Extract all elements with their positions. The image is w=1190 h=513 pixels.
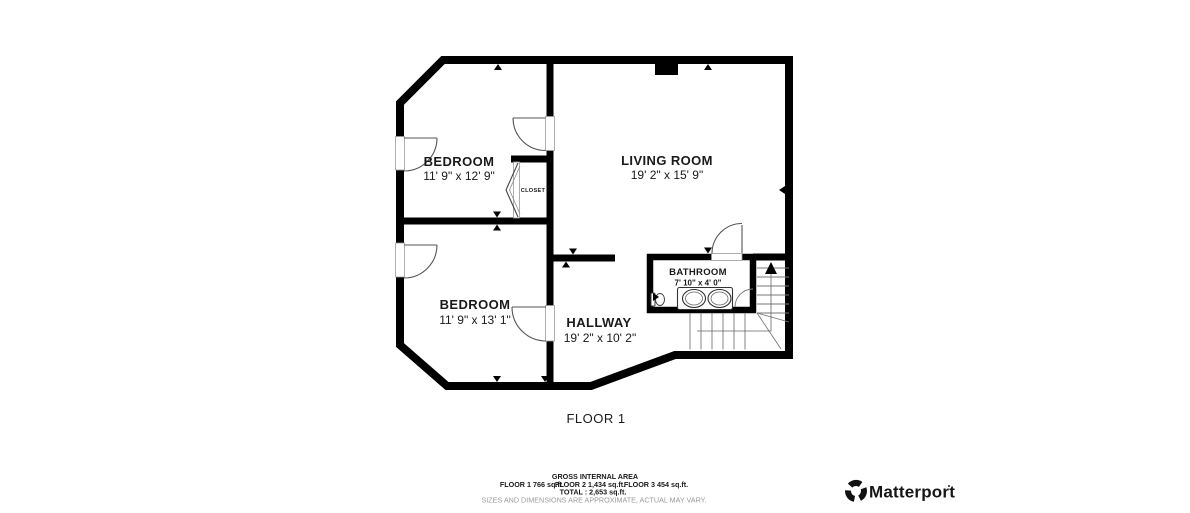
room-dims-bedroom2: 11' 9" x 13' 1" [439,313,511,327]
room-label-bedroom1: BEDROOM [424,154,495,169]
floor-label: FLOOR 1 [566,411,625,426]
disclaimer: SIZES AND DIMENSIONS ARE APPROXIMATE, AC… [482,496,707,505]
floor-plan-canvas: BEDROOM 11' 9" x 12' 9" LIVING ROOM 19' … [0,0,1190,513]
room-label-hallway: HALLWAY [566,315,631,330]
sink-right-basin [711,292,728,305]
vanity-sinks [678,288,733,310]
chimney [655,58,678,75]
toilet-bowl [656,294,665,306]
room-label-living-room: LIVING ROOM [621,153,713,168]
floor-plan: BEDROOM 11' 9" x 12' 9" LIVING ROOM 19' … [396,57,794,426]
matterport-icon [846,481,867,502]
opening-bedroom1-top [546,117,555,151]
floor3-area: FLOOR 3 454 sq.ft. [624,480,688,489]
matterport-wordmark: Matterport [869,483,955,502]
room-dims-bedroom1: 11' 9" x 12' 9" [423,169,495,183]
room-label-bedroom2: BEDROOM [440,297,511,312]
room-dims-hallway: 19' 2" x 10' 2" [564,331,636,345]
sink-left-basin [686,292,703,305]
room-label-bathroom: BATHROOM [669,267,727,278]
footer: GROSS INTERNAL AREA FLOOR 1 766 sq.ft. F… [482,472,707,505]
opening-bathroom [712,254,743,261]
room-dims-living-room: 19' 2" x 15' 9" [631,168,703,182]
floor-plan-page: BEDROOM 11' 9" x 12' 9" LIVING ROOM 19' … [0,0,1190,513]
opening-bedroom1-left [396,137,405,171]
room-dims-bathroom: 7' 10" x 4' 0" [675,279,722,288]
trademark-icon [948,485,950,487]
opening-bedroom2-left [396,243,405,277]
opening-bedroom2-hallway [546,306,555,342]
room-label-closet: CLOSET [521,188,546,194]
matterport-logo: Matterport [846,481,955,502]
